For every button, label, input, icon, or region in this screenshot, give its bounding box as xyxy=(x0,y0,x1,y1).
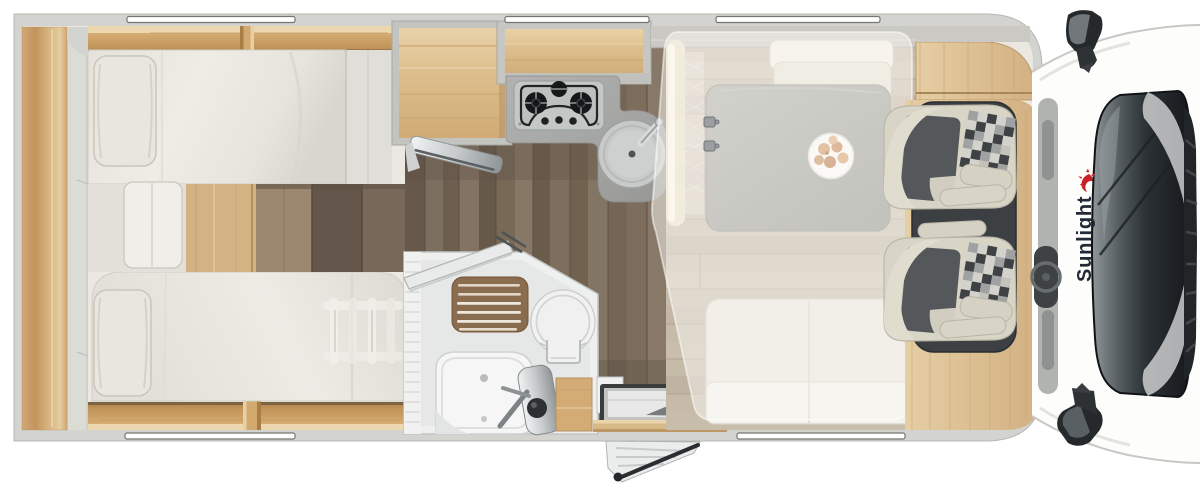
svg-text:Sunlight: Sunlight xyxy=(1074,196,1096,282)
